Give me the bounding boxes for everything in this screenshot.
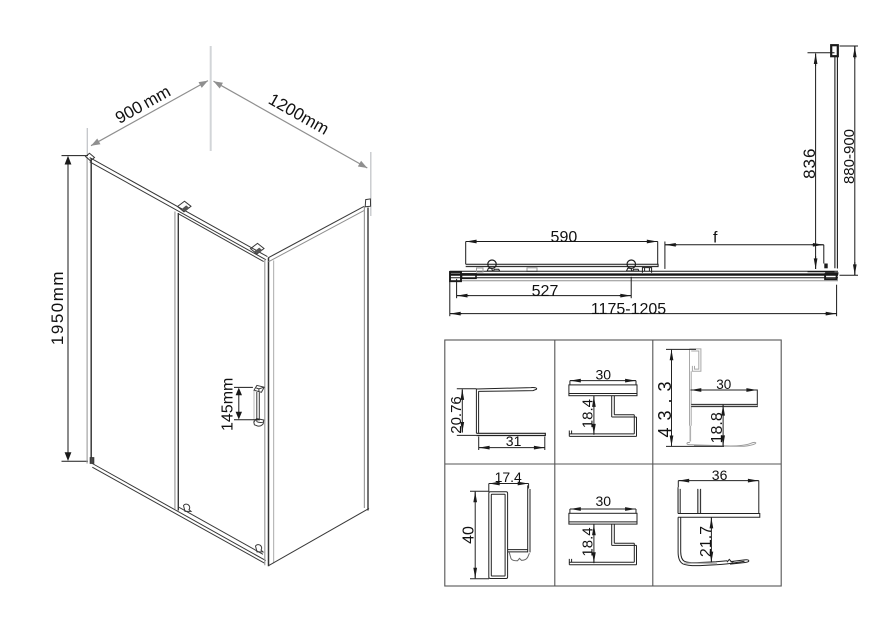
svg-text:f: f: [713, 229, 718, 246]
svg-text:836: 836: [800, 148, 819, 179]
svg-text:880-900: 880-900: [841, 129, 858, 184]
svg-text:31: 31: [506, 433, 522, 449]
svg-text:40: 40: [461, 526, 478, 544]
svg-text:18.4: 18.4: [580, 399, 597, 428]
svg-text:20.76: 20.76: [448, 396, 465, 434]
svg-text:30: 30: [596, 367, 612, 383]
svg-text:1175-1205: 1175-1205: [591, 301, 666, 318]
svg-text:527: 527: [532, 283, 559, 300]
svg-text:21.7: 21.7: [698, 526, 715, 557]
svg-text:36: 36: [712, 467, 728, 483]
svg-text:590: 590: [551, 229, 578, 246]
svg-text:43.3: 43.3: [655, 374, 675, 437]
svg-text:30: 30: [716, 377, 731, 392]
svg-text:145mm: 145mm: [219, 378, 236, 431]
svg-text:18.8: 18.8: [709, 412, 726, 443]
svg-text:1950mm: 1950mm: [48, 270, 67, 345]
svg-text:30: 30: [596, 493, 612, 509]
svg-text:18.4: 18.4: [580, 527, 597, 556]
svg-text:17.4: 17.4: [495, 469, 522, 485]
